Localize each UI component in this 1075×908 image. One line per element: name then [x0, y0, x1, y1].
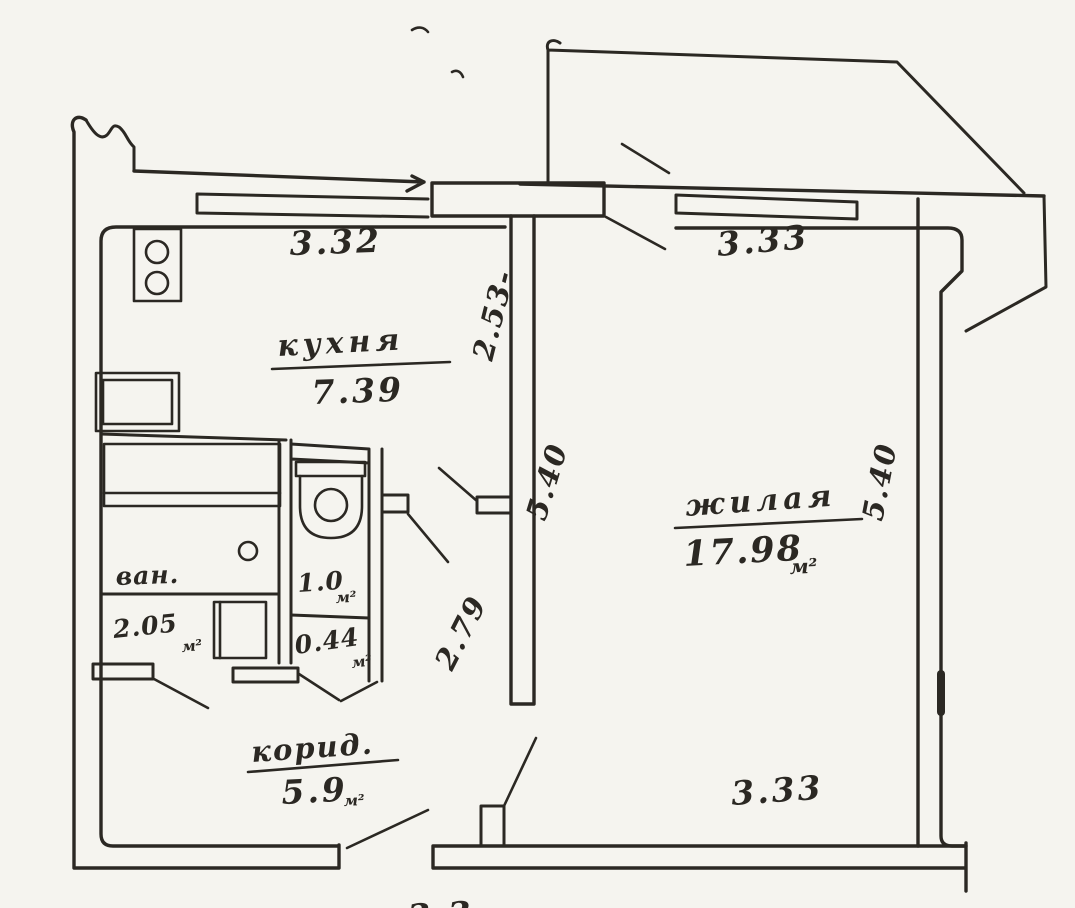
labels: 3.32 3.33 2.53- 5.40 2.79 5.40 3.33 3.3 … [111, 217, 904, 908]
living-window [676, 195, 857, 219]
closet-top-wall [291, 615, 369, 618]
kitchen-door-jamb [477, 497, 511, 513]
bathtub-icon [104, 444, 280, 560]
balcony-outline [547, 41, 1024, 193]
kitchen-label: кухня [277, 322, 406, 364]
kitchen-underline [272, 362, 450, 369]
dim-bottom-partial: 3.3 [406, 894, 474, 908]
balcony-door-swing [606, 217, 665, 249]
kitchen-area: 7.39 [311, 370, 405, 412]
kitchen-sink-icon [96, 373, 179, 431]
bottom-wall-band [433, 843, 966, 891]
closet-area-unit: м² [350, 651, 374, 672]
wc-area-unit: м² [335, 588, 357, 607]
entrance-door-swing [347, 810, 428, 848]
closet-door-bar [233, 668, 298, 682]
kitchen-window [197, 194, 428, 217]
living-label: жилая [684, 479, 837, 524]
kitchen-door-swing [439, 468, 477, 501]
living-door-swing [504, 738, 536, 806]
living-area: 17.98 [682, 528, 804, 575]
corridor-area: 5.9 [280, 770, 348, 812]
wc-door-jamb [382, 495, 408, 512]
floor-plan-drawing: 3.32 3.33 2.53- 5.40 2.79 5.40 3.33 3.3 … [0, 0, 1075, 908]
dim-kitchen-depth-left: 2.53- [466, 266, 522, 365]
balcony-leader-line [622, 144, 669, 173]
washer-icon [214, 602, 266, 658]
bath-top-wall [101, 434, 286, 440]
toilet-icon [296, 462, 365, 538]
dim-living-depth-right: 5.40 [855, 440, 903, 524]
bathroom-area-unit: м² [181, 636, 204, 656]
kitchen-top-wall [134, 171, 424, 191]
living-door-jamb [481, 806, 504, 846]
dim-hall-depth-inner: 2.79 [427, 590, 493, 676]
wall-cap [432, 183, 604, 216]
floor-plan-sheet: 3.32 3.33 2.53- 5.40 2.79 5.40 3.33 3.3 … [0, 0, 1075, 908]
bathroom-area: 2.05 [111, 608, 180, 644]
wall-break-squiggle-icon [86, 120, 134, 171]
dim-kitchen-width-top: 3.32 [289, 221, 383, 263]
bathroom-label: ван. [115, 560, 180, 591]
stove-icon [134, 229, 181, 301]
stray-mark [412, 28, 463, 77]
drain-icon [239, 542, 257, 560]
living-area-unit: м² [789, 554, 818, 579]
dim-living-width-top: 3.33 [715, 217, 810, 264]
wc-door-swing [408, 514, 448, 562]
bath-door-swing [154, 679, 208, 708]
dim-living-width-bottom: 3.33 [730, 768, 825, 813]
dim-living-depth-inner: 5.40 [519, 439, 575, 524]
closet-door-swings [299, 674, 377, 701]
corridor-area-unit: м² [343, 791, 365, 810]
corner-chamfer [966, 196, 1046, 331]
living-top-wall [520, 184, 1044, 196]
